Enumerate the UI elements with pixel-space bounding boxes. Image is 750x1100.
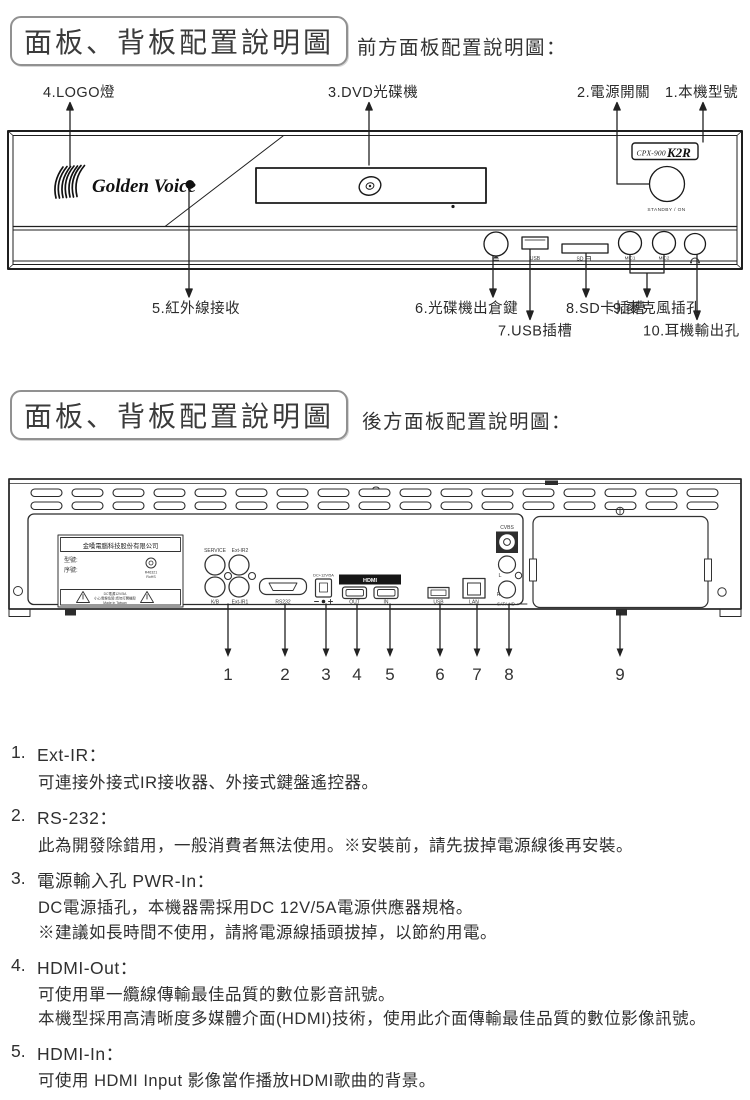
serial-field: 序號:: [64, 566, 78, 574]
back-port-number-3: 3: [321, 665, 330, 684]
callout-arrows-bottom: [186, 189, 700, 320]
rs232-port: [260, 579, 307, 595]
callout-ir-receiver: 5.紅外線接收: [152, 300, 240, 317]
vent-slot: [195, 489, 226, 497]
tray-indicator-dot: [451, 205, 454, 208]
brand-logo: Golden Voice: [55, 166, 197, 199]
headphone-jack: [685, 234, 706, 264]
audio-right-jack: [499, 581, 516, 598]
model-prefix: CPX-900: [637, 149, 666, 158]
vent-slot: [605, 489, 636, 497]
disc-icon: [357, 174, 383, 198]
back-port-number-2: 2: [280, 665, 289, 684]
vent-slot: [277, 489, 308, 497]
vent-slot: [687, 489, 718, 497]
rating-label-plate: 金嗓電腦科技股份有限公司 型號: 序號: R46321 RoHS DC電源12V…: [58, 535, 183, 607]
vent-slot: [359, 502, 390, 510]
item-title: 電源輸入孔 PWR-In：: [37, 868, 215, 893]
service-label: SERVICE: [204, 548, 227, 554]
hdmi-ports: HDMI OUT IN: [339, 575, 401, 606]
warning-line1: DC電源12V/5A: [104, 591, 128, 596]
vent-slot: [523, 502, 554, 510]
model-badge: CPX-900 K2R: [632, 143, 698, 160]
lan-port: [463, 579, 485, 599]
section1-subtitle: 前方面板配置說明圖：: [357, 31, 567, 60]
vent-slot: [359, 489, 390, 497]
rohs-label: RoHS: [146, 575, 156, 579]
brand-name: Golden Voice: [92, 176, 197, 197]
item-title: Ext-IR：: [37, 742, 107, 767]
vent-slot: [318, 502, 349, 510]
panel-foot: [616, 609, 627, 616]
callout-dvd-drive: 3.DVD光碟機: [328, 84, 418, 101]
vent-slot: [154, 489, 185, 497]
callout-usb-slot: 7.USB插槽: [498, 323, 572, 340]
vent-grille: [31, 489, 718, 510]
audio-right-label: R: [497, 592, 501, 598]
hdmi-out-label: OUT: [349, 600, 360, 606]
usb-back-label: USB: [433, 600, 444, 606]
vent-slot: [523, 489, 554, 497]
usb-port-label: USB: [530, 256, 541, 262]
kb-label: K/B: [211, 600, 220, 606]
vent-slot: [564, 489, 595, 497]
sd-slot-label: SD: [577, 257, 584, 263]
vent-slot: [687, 502, 718, 510]
callout-logo-light: 4.LOGO燈: [43, 84, 115, 101]
back-port-number-4: 4: [352, 665, 361, 684]
vent-slot: [31, 489, 62, 497]
callout-arrows-top: [67, 103, 706, 185]
vent-slot: [646, 502, 677, 510]
item-number: 1.: [11, 742, 26, 763]
hdd-tray-plate: [530, 517, 712, 608]
section2-title-box: 面板、背板配置說明圖: [10, 390, 348, 440]
callout-power-switch: 2.電源開關: [577, 84, 650, 101]
manual-page: 面板、背板配置說明圖 前方面板配置說明圖： 4.LOGO燈 3.DVD光碟機 2…: [0, 0, 750, 1100]
item-body: 可連接外接式IR接收器、外接式鍵盤遙控器。: [38, 769, 379, 793]
vent-slot: [154, 502, 185, 510]
hdmi-label: HDMI: [363, 578, 378, 584]
vent-slot: [482, 489, 513, 497]
ext-ir1-label: Ext-IR1: [232, 600, 249, 606]
panel-notch: [545, 481, 558, 486]
item-body: 本機型採用高清晰度多媒體介面(HDMI)技術，使用此介面傳輸最佳品質的數位影像訊…: [38, 1005, 706, 1029]
vent-slot: [236, 502, 267, 510]
callout-mic-jacks: 9.麥克風插孔: [613, 300, 701, 317]
item-number: 4.: [11, 955, 26, 976]
audio-left-label: L: [498, 573, 501, 579]
dc-label: DC+12V/5A: [313, 573, 334, 578]
warning-line3: Made in Taiwan: [103, 601, 127, 605]
back-port-number-5: 5: [385, 665, 394, 684]
sd-card-slot: SD: [562, 244, 608, 263]
section1-title: 面板、背板配置說明圖: [24, 21, 334, 61]
item-title: HDMI-Out：: [37, 955, 138, 980]
back-port-number-7: 7: [472, 665, 481, 684]
ext-ir2-jack: [229, 555, 249, 575]
lan-label: LAN: [469, 600, 479, 606]
usb-port-back: [428, 588, 449, 599]
usb-port-front: USB: [522, 237, 548, 262]
back-port-number-1: 1: [223, 665, 232, 684]
item-body: 可使用 HDMI Input 影像當作播放HDMI歌曲的背景。: [38, 1067, 436, 1091]
ext-ir-jacks: [205, 555, 256, 597]
vent-slot: [72, 489, 103, 497]
vent-slot: [236, 489, 267, 497]
panel-foot: [65, 609, 76, 616]
power-button: STANDBY / ON: [647, 167, 685, 214]
ext-ir1-jack: [229, 577, 249, 597]
vent-slot: [400, 489, 431, 497]
kb-jack: [205, 577, 225, 597]
ext-ir2-label: Ext-IR2: [232, 548, 249, 554]
item-body: 此為開發除錯用，一般消費者無法使用。※安裝前，請先拔掉電源線後再安裝。: [38, 832, 633, 856]
back-panel-diagram: 金嗓電腦科技股份有限公司 型號: 序號: R46321 RoHS DC電源12V…: [0, 470, 750, 695]
vent-slot: [646, 489, 677, 497]
vent-slot: [564, 502, 595, 510]
ir-receiver-dot: [186, 180, 195, 189]
item-number: 3.: [11, 868, 26, 889]
item-body: DC電源插孔，本機器需採用DC 12V/5A電源供應器規格。: [38, 894, 473, 918]
vent-slot: [318, 489, 349, 497]
dvd-tray: [256, 168, 486, 208]
item-number: 5.: [11, 1041, 26, 1062]
vent-slot: [441, 502, 472, 510]
vent-slot: [400, 502, 431, 510]
callout-headphone-out: 10.耳機輸出孔: [643, 323, 740, 340]
vent-slot: [277, 502, 308, 510]
port-number-callouts: 123456789: [223, 604, 624, 684]
audio-left-jack: [499, 556, 516, 573]
callout-model-number: 1.本機型號: [665, 84, 738, 101]
vent-slot: [441, 489, 472, 497]
vent-slot: [72, 502, 103, 510]
vent-slot: [482, 502, 513, 510]
vent-slot: [31, 502, 62, 510]
company-name: 金嗓電腦科技股份有限公司: [83, 541, 159, 550]
back-port-number-9: 9: [615, 665, 624, 684]
hdmi-in-label: IN: [384, 600, 389, 606]
item-body: ※建議如長時間不使用，請將電源線插頭拔掉，以節約用電。: [38, 919, 497, 943]
item-body: 可使用單一纜線傳輸最佳品質的數位影音訊號。: [38, 981, 395, 1005]
item-title: RS-232：: [37, 805, 117, 830]
vent-slot: [113, 489, 144, 497]
polarity-icon: [315, 600, 333, 604]
back-port-number-6: 6: [435, 665, 444, 684]
power-input-jack: [315, 579, 333, 604]
item-title: HDMI-In：: [37, 1041, 124, 1066]
back-port-number-8: 8: [504, 665, 513, 684]
rs232-label: RS232: [275, 600, 291, 606]
vent-slot: [113, 502, 144, 510]
sata-label: SATA HD: [497, 602, 515, 607]
service-jack: [205, 555, 225, 575]
section1-title-box: 面板、背板配置說明圖: [10, 16, 348, 66]
item-number: 2.: [11, 805, 26, 826]
eject-button: [484, 232, 508, 261]
vent-slot: [605, 502, 636, 510]
power-button-label: STANDBY / ON: [647, 207, 685, 213]
model-name: K2R: [666, 145, 691, 160]
cvbs-label: CVBS: [500, 525, 514, 531]
section2-subtitle: 後方面板配置說明圖：: [362, 405, 572, 434]
callout-eject-key: 6.光碟機出倉鍵: [415, 300, 518, 317]
vent-slot: [195, 502, 226, 510]
warning-line2: 小心電擊危險 請勿打開機殼: [94, 596, 136, 601]
logo-fan-icon: [55, 166, 85, 199]
model-field: 型號:: [64, 556, 78, 564]
front-panel-diagram: 4.LOGO燈 3.DVD光碟機 2.電源開關 1.本機型號: [0, 75, 750, 345]
section2-title: 面板、背板配置說明圖: [24, 395, 334, 435]
rohs-code: R46321: [145, 571, 158, 575]
